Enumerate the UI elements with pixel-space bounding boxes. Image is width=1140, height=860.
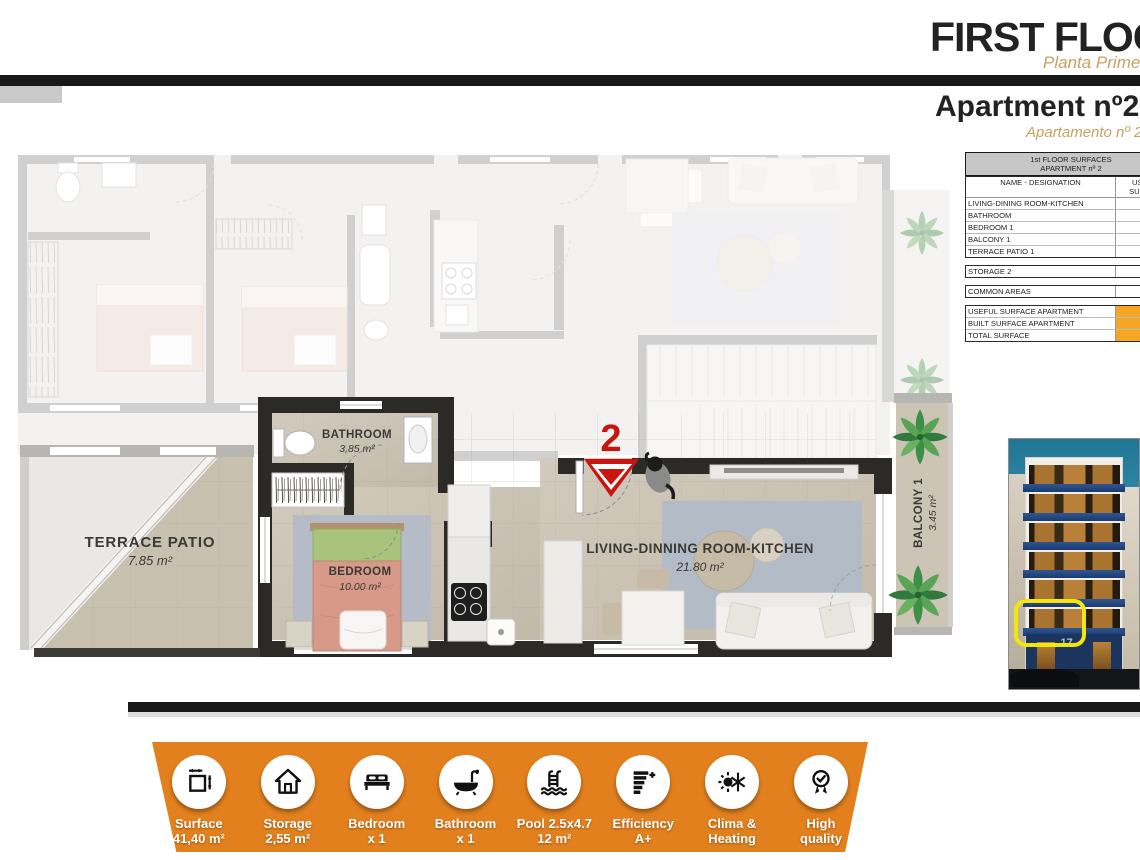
- building-balcony: [1023, 513, 1124, 521]
- surfaces-table: 1st FLOOR SURFACES APARTMENT nº 2 NAME -…: [965, 152, 1140, 342]
- building-floor-windows: [1029, 465, 1120, 484]
- table-cell-name: BATHROOM: [966, 210, 1116, 222]
- faded-sofa: [728, 158, 858, 204]
- apartment-title: Apartment nº2: [935, 90, 1139, 124]
- balcony-label: BALCONY 1: [913, 478, 925, 548]
- feature-label-line2: Heating: [690, 832, 774, 847]
- entrance-number: 2: [600, 418, 621, 460]
- table-cell-value: 62.14 m²: [1116, 330, 1140, 341]
- page-subtitle: Planta Primera: [1043, 53, 1140, 73]
- table-row: BATHROOM3.86 m²: [966, 210, 1140, 222]
- quality-icon: [794, 755, 848, 809]
- entrance-door: [1093, 642, 1110, 668]
- building-balcony: [1023, 542, 1124, 550]
- building-elevation-photo: 17: [1008, 438, 1140, 690]
- table-cell-value: 21.79 m²: [1116, 198, 1140, 210]
- apartment-highlight-box: [1014, 599, 1086, 647]
- toilet: [273, 429, 315, 457]
- table-row: STORAGE 22.55 m²: [966, 266, 1140, 277]
- feature-label-line1: Efficiency: [601, 817, 685, 832]
- bedroom-area: 10.00 m²: [339, 581, 381, 593]
- bathroom-area: 3,85 m²: [339, 443, 375, 455]
- stove-hob: [451, 583, 487, 621]
- table-row: COMMON AREAS6.95 m²: [966, 286, 1140, 297]
- table-cell-value: 3.86 m²: [1116, 210, 1140, 222]
- entrance-door-leaf: [576, 461, 583, 513]
- table-row: BALCONY 13.45 m²: [966, 234, 1140, 246]
- feature-label: Pool 2.5x4.712 m²: [512, 817, 596, 847]
- bathroom-label: BATHROOM: [322, 429, 392, 441]
- feature-item: Clima &Heating: [690, 755, 774, 847]
- feature-label-line1: Clima &: [690, 817, 774, 832]
- washbasin: [404, 417, 432, 463]
- building-floor-windows: [1029, 523, 1120, 542]
- apartment-subtitle: Apartamento nº 2: [1026, 124, 1140, 141]
- floor-plan: 2 TERRACE PATIO 7.85 m² BATHROOM 3,85 m²…: [10, 145, 955, 690]
- table-cell-name: STORAGE 2: [966, 266, 1116, 277]
- table-row: BUILT SURFACE APARTMENT41.37 m²: [966, 318, 1140, 330]
- feature-item: Bedroomx 1: [335, 755, 419, 847]
- feature-item: EfficiencyA+: [601, 755, 685, 847]
- feature-label-line1: Bedroom: [335, 817, 419, 832]
- feature-label-line2: A+: [601, 832, 685, 847]
- feature-label-line1: Pool 2.5x4.7: [512, 817, 596, 832]
- kitchen-sink: [487, 619, 515, 645]
- table-row: LIVING-DINING ROOM-KITCHEN21.79 m²: [966, 198, 1140, 210]
- feature-label-line2: x 1: [424, 832, 508, 847]
- table-title-line1: 1st FLOOR SURFACES: [966, 155, 1140, 164]
- balcony-area: 3.45 m²: [927, 495, 939, 531]
- feature-label-line2: 12 m²: [512, 832, 596, 847]
- surfaces-table-title: 1st FLOOR SURFACES APARTMENT nº 2: [965, 152, 1140, 176]
- feature-label-line1: Surface: [157, 817, 241, 832]
- surface-icon: [172, 755, 226, 809]
- table-cell-value: 35.26 m²: [1116, 306, 1140, 318]
- table-row: TERRACE PATIO 17.82 m²: [966, 246, 1140, 257]
- wardrobe: [272, 473, 344, 507]
- storage-icon: [261, 755, 315, 809]
- feature-label: Bathroomx 1: [424, 817, 508, 847]
- feature-label: EfficiencyA+: [601, 817, 685, 847]
- footer-divider-bar: [128, 702, 1140, 712]
- pool-icon: [527, 755, 581, 809]
- table-cell-value: 41.37 m²: [1116, 318, 1140, 330]
- header-divider-bar: [0, 75, 1140, 86]
- faded-wardrobe: [216, 219, 292, 249]
- building-floor-windows: [1029, 494, 1120, 513]
- table-row: USEFUL SURFACE APARTMENT35.26 m²: [966, 306, 1140, 318]
- feature-label: Bedroomx 1: [335, 817, 419, 847]
- feature-item: Pool 2.5x4.712 m²: [512, 755, 596, 847]
- feature-label: Clima &Heating: [690, 817, 774, 847]
- feature-item: Bathroomx 1: [424, 755, 508, 847]
- table-cell-name: BUILT SURFACE APARTMENT: [966, 318, 1116, 330]
- faded-rug: [672, 213, 840, 325]
- nightstand: [402, 621, 428, 647]
- features-banner: Surface41,40 m²Storage2,55 m²Bedroomx 1B…: [152, 742, 868, 852]
- feature-label: Storage2,55 m²: [246, 817, 330, 847]
- table-title-line2: APARTMENT nº 2: [966, 164, 1140, 173]
- efficiency-icon: [616, 755, 670, 809]
- feature-label-line1: Bathroom: [424, 817, 508, 832]
- table-cell-name: COMMON AREAS: [966, 286, 1116, 297]
- tv-console: [710, 465, 858, 479]
- building-floor-windows: [1029, 580, 1120, 599]
- nightstand: [286, 621, 312, 647]
- table-cell-name: TERRACE PATIO 1: [966, 246, 1116, 257]
- terrace-area: 7.85 m²: [128, 553, 173, 568]
- footer-divider-shadow: [128, 712, 1140, 717]
- faded-wardrobe: [28, 242, 58, 397]
- feature-label-line2: quality: [779, 832, 863, 847]
- faded-bed: [242, 287, 347, 371]
- sofa: [716, 593, 872, 649]
- table-cell-value: 2.55 m²: [1116, 266, 1140, 277]
- living-area: 21.80 m²: [675, 560, 724, 574]
- header-gray-stub: [0, 86, 62, 103]
- feature-label: Highquality: [779, 817, 863, 847]
- building-balcony: [1023, 484, 1124, 492]
- feature-item: Highquality: [779, 755, 863, 847]
- feature-label-line2: x 1: [335, 832, 419, 847]
- col-value-header: USEFUL SURFACE: [1116, 177, 1140, 198]
- feature-label-line1: Storage: [246, 817, 330, 832]
- bed-icon: [350, 755, 404, 809]
- building-floor-windows: [1029, 552, 1120, 571]
- table-cell-value: 3.45 m²: [1116, 234, 1140, 246]
- feature-label-line2: 2,55 m²: [246, 832, 330, 847]
- table-cell-value: 9.61 m²: [1116, 222, 1140, 234]
- table-cell-name: LIVING-DINING ROOM-KITCHEN: [966, 198, 1116, 210]
- building-balcony: [1023, 570, 1124, 578]
- neighbour-building-left: [1009, 474, 1026, 689]
- living-label: LIVING-DINNING ROOM-KITCHEN: [586, 541, 814, 556]
- palm-plant: [888, 565, 947, 624]
- table-row: TOTAL SURFACE62.14 m²: [966, 330, 1140, 341]
- col-name-header: NAME - DESIGNATION: [966, 177, 1116, 198]
- feature-label-line2: 41,40 m²: [157, 832, 241, 847]
- table-cell-name: USEFUL SURFACE APARTMENT: [966, 306, 1116, 318]
- palm-plant: [893, 410, 948, 465]
- faded-bed: [97, 285, 203, 371]
- table-header-row: NAME - DESIGNATION USEFUL SURFACE: [966, 177, 1140, 198]
- table-cell-value: 7.82 m²: [1116, 246, 1140, 257]
- table-cell-value: 6.95 m²: [1116, 286, 1140, 297]
- clima-icon: [705, 755, 759, 809]
- bath-icon: [439, 755, 493, 809]
- terrace-label: TERRACE PATIO: [85, 534, 216, 551]
- car-silhouette: [1010, 669, 1079, 687]
- table-cell-name: TOTAL SURFACE: [966, 330, 1116, 341]
- feature-label: Surface41,40 m²: [157, 817, 241, 847]
- feature-item: Storage2,55 m²: [246, 755, 330, 847]
- feature-item: Surface41,40 m²: [157, 755, 241, 847]
- faded-kitchen: [434, 220, 478, 332]
- table-row: BEDROOM 19.61 m²: [966, 222, 1140, 234]
- table-cell-name: BALCONY 1: [966, 234, 1116, 246]
- table-cell-name: BEDROOM 1: [966, 222, 1116, 234]
- feature-label-line1: High: [779, 817, 863, 832]
- bedroom-label: BEDROOM: [329, 566, 392, 578]
